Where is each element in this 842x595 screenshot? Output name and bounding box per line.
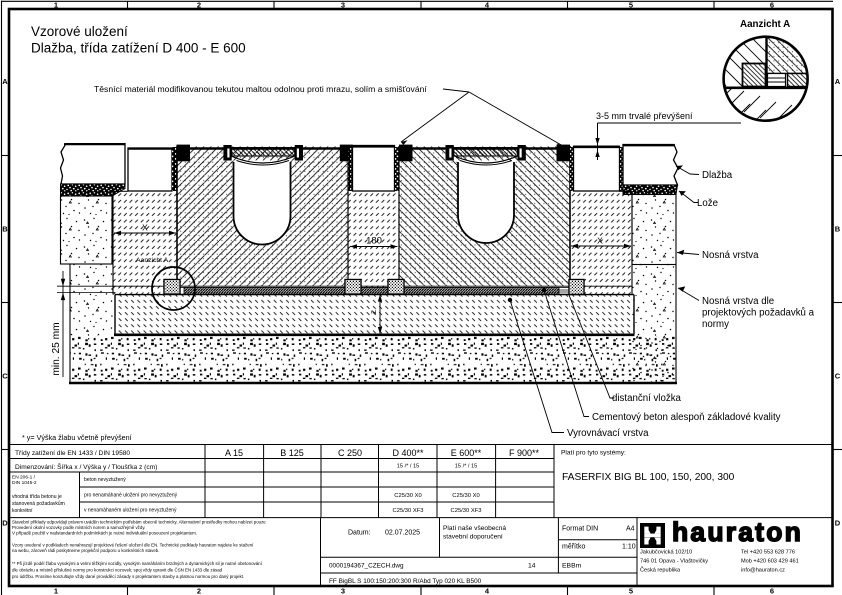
svg-text:Platí naše všeobecná: Platí naše všeobecná xyxy=(443,525,506,532)
svg-text:C25/30 X0: C25/30 X0 xyxy=(452,493,479,499)
svg-text:3-5 mm trvalé převýšení: 3-5 mm trvalé převýšení xyxy=(596,111,693,121)
svg-text:na webu, zároveň rádi poskytne: na webu, zároveň rádi poskytneme projekč… xyxy=(12,548,159,553)
svg-text:X: X xyxy=(597,236,603,246)
svg-text:746 01 Opava - Vlaštovičky: 746 01 Opava - Vlaštovičky xyxy=(640,559,708,565)
svg-text:D: D xyxy=(835,519,841,528)
svg-text:pro nenamáhané uložení pro nev: pro nenamáhané uložení pro nevyztužený xyxy=(84,493,178,499)
svg-text:F 900**: F 900** xyxy=(509,448,540,458)
svg-text:3: 3 xyxy=(341,1,345,10)
svg-text:EBBm: EBBm xyxy=(562,563,582,570)
svg-text:15 /* / 15: 15 /* / 15 xyxy=(455,464,477,470)
svg-text:Datum:: Datum: xyxy=(348,530,371,537)
svg-text:B 125: B 125 xyxy=(280,448,304,458)
svg-text:6: 6 xyxy=(770,1,774,10)
svg-text:projektových požadavků a: projektových požadavků a xyxy=(702,308,815,319)
svg-text:5: 5 xyxy=(629,1,633,10)
svg-text:beton nevyztužený: beton nevyztužený xyxy=(84,477,126,483)
svg-text:distanční vložka: distanční vložka xyxy=(612,393,682,404)
svg-text:FF BigBL S 100:150:200:300 R/: FF BigBL S 100:150:200:300 R/Abd Typ 020… xyxy=(329,578,482,585)
svg-text:vhodná třída betonu je: vhodná třída betonu je xyxy=(12,494,62,500)
svg-text:A: A xyxy=(835,77,841,86)
svg-text:B: B xyxy=(2,225,8,234)
svg-text:Provedení okolní vozovky podle: Provedení okolní vozovky podle místních … xyxy=(12,525,145,530)
svg-text:1: 1 xyxy=(54,587,58,595)
svg-text:A4: A4 xyxy=(626,526,635,533)
svg-text:15 /* / 15: 15 /* / 15 xyxy=(397,464,419,470)
svg-text:Aanzicht A: Aanzicht A xyxy=(740,19,790,30)
svg-text:02.07.2025: 02.07.2025 xyxy=(385,530,420,537)
svg-text:Format DIN: Format DIN xyxy=(562,526,598,533)
svg-text:min. 25 mm: min. 25 mm xyxy=(51,322,62,375)
svg-text:5: 5 xyxy=(629,587,633,595)
svg-text:stavební doporučení: stavební doporučení xyxy=(443,534,503,541)
svg-text:C: C xyxy=(835,372,841,381)
svg-text:C: C xyxy=(2,372,8,381)
svg-text:EN 206-1 /: EN 206-1 / xyxy=(12,475,36,481)
svg-text:X: X xyxy=(142,223,148,233)
svg-text:Vyrovnávací vrstva: Vyrovnávací vrstva xyxy=(567,428,649,439)
svg-text:DIN 1045-2: DIN 1045-2 xyxy=(12,480,37,486)
svg-text:Aanzicht A: Aanzicht A xyxy=(136,257,169,264)
svg-text:A: A xyxy=(2,77,8,86)
svg-text:2: 2 xyxy=(197,587,201,595)
svg-text:info@hauraton.cz: info@hauraton.cz xyxy=(741,568,785,574)
svg-text:Třídy zatížení dle EN 1433 / D: Třídy zatížení dle EN 1433 / DIN 19580 xyxy=(15,450,130,457)
svg-text:1:10: 1:10 xyxy=(622,544,636,551)
svg-text:Jakubčovická 102/10: Jakubčovická 102/10 xyxy=(640,550,692,556)
svg-text:C25/30 X0: C25/30 X0 xyxy=(394,493,421,499)
svg-text:Vzorové uložení: Vzorové uložení xyxy=(31,24,128,39)
svg-text:Lože: Lože xyxy=(697,198,718,209)
svg-text:Tel +420 553 628 776: Tel +420 553 628 776 xyxy=(741,550,795,556)
svg-text:** Při jízdě podél žlabu vysok: ** Při jízdě podél žlabu vysokými a velm… xyxy=(12,561,263,566)
svg-text:Dimenzování: Šířka x / Výška: Dimenzování: Šířka x / Výška y / Tloušťk… xyxy=(15,462,157,471)
svg-text:E 600**: E 600** xyxy=(451,448,482,458)
svg-text:z: z xyxy=(368,310,378,314)
svg-text:14: 14 xyxy=(528,563,536,570)
svg-text:normy: normy xyxy=(702,319,729,330)
svg-text:C25/30 XF3: C25/30 XF3 xyxy=(393,508,424,514)
svg-text:pro údržbu. Prosíme konzultujt: pro údržbu. Prosíme konzultujte vždy dan… xyxy=(12,574,244,579)
svg-text:C 250: C 250 xyxy=(338,448,362,458)
svg-text:Nosná vrstva: Nosná vrstva xyxy=(702,250,759,261)
svg-text:Česká republika: Česká republika xyxy=(640,567,681,574)
svg-text:A 15: A 15 xyxy=(225,448,243,458)
svg-text:2: 2 xyxy=(197,1,201,10)
svg-text:v nenamáhaném uložení pro nevy: v nenamáhaném uložení pro nevyztužený xyxy=(84,508,177,514)
svg-text:3: 3 xyxy=(341,587,345,595)
svg-text:hauraton: hauraton xyxy=(672,517,803,547)
svg-text:Platí pro tyto systémy:: Platí pro tyto systémy: xyxy=(561,450,626,457)
svg-text:0000194367_CZECH.dwg: 0000194367_CZECH.dwg xyxy=(329,563,404,570)
svg-text:Mob +420 603 429 461: Mob +420 603 429 461 xyxy=(741,559,799,565)
svg-text:180: 180 xyxy=(366,236,382,247)
svg-text:konkrétní: konkrétní xyxy=(12,508,33,514)
svg-text:D 400**: D 400** xyxy=(392,448,424,458)
svg-text:1: 1 xyxy=(54,1,58,10)
svg-text:FASERFIX BIG BL 100, 150, 200,: FASERFIX BIG BL 100, 150, 200, 300 xyxy=(562,472,735,483)
svg-text:stanovená požadavkům: stanovená požadavkům xyxy=(12,500,65,507)
svg-text:měřítko: měřítko xyxy=(562,544,585,551)
svg-text:* y= Výška žlabu včetně převýš: * y= Výška žlabu včetně převýšení xyxy=(22,433,132,442)
svg-text:B: B xyxy=(835,225,841,234)
svg-text:C25/30 XF3: C25/30 XF3 xyxy=(451,508,482,514)
svg-text:Cementový beton alespoň základ: Cementový beton alespoň základové kvalit… xyxy=(592,412,781,423)
svg-text:D: D xyxy=(2,519,8,528)
svg-text:6: 6 xyxy=(770,587,774,595)
svg-text:Těsnící materiál modifikovanou: Těsnící materiál modifikovanou tekutou m… xyxy=(94,84,427,94)
svg-text:Dlažba, třída zatížení D 400 -: Dlažba, třída zatížení D 400 - E 600 xyxy=(31,41,246,56)
svg-text:dle obrázku a místně příslušné: dle obrázku a místně příslušné normy pro… xyxy=(12,568,223,573)
svg-text:V případě použití v nadstandar: V případě použití v nadstandardních podm… xyxy=(12,531,197,536)
svg-text:Dlažba: Dlažba xyxy=(702,170,733,181)
svg-text:Nosná vrstva dle: Nosná vrstva dle xyxy=(702,296,774,307)
svg-text:Stavební přiklady odpovídají p: Stavební přiklady odpovídají právem uvád… xyxy=(12,520,266,525)
svg-text:Vzory uvedené v podkladech nen: Vzory uvedené v podkladech nenahrazují p… xyxy=(12,543,254,548)
